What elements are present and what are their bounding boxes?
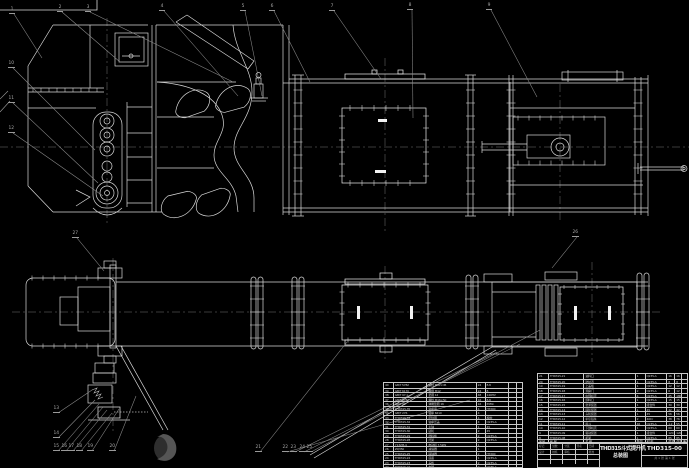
elevation-conveyor-trough [283,75,648,216]
bom-cell: 垫圈 12 [426,393,475,397]
bom-cell [516,389,522,393]
bom-cell: 料斗 [583,422,634,426]
bom-cell: 螺栓 M12×45 [426,383,475,388]
bom-cell [516,420,522,424]
bom-cell: 120 [674,431,681,435]
bom-cell [516,452,522,456]
bom-cell: 8 [666,380,674,384]
bom-cell [516,411,522,415]
bom-cell [516,393,522,397]
balloon-callout: 23 [290,446,297,452]
elevation-bucket-casing [152,15,289,218]
bom-cell: 挡料板 [426,434,475,438]
title-block-cell [587,460,599,464]
drawing-title: 总装图 [600,453,641,459]
bom-row: 23THD315-23盖板2Q235-A [384,460,522,465]
bom-cell: 防护罩 [583,380,634,384]
bom-row: 20THD315-20防护罩1Q235-A88 [538,379,687,384]
bom-cell [681,374,687,379]
bom-cell: 进料口 [583,374,634,379]
bom-table-standard-parts: 40GB/T 5782螺栓 M12×45248.839GB/T 6170螺母 M… [383,382,523,468]
leader-line [62,12,120,62]
bom-cell: 牵引链条 [583,417,634,421]
bom-cell: THD315-31 [393,425,427,429]
balloon-callout: 21 [255,446,262,452]
title-block-cell [550,460,562,464]
bom-cell: 27 [384,443,393,447]
bom-cell [516,416,522,420]
bom-cell: 30 [674,403,681,407]
bom-cell: 1 [476,443,485,447]
bom-row: 34GB/T 276轴承 62104 [384,410,522,415]
bom-cell: THD315-23 [393,461,427,465]
leader-line [90,12,233,82]
bom-cell: 1 [635,408,645,412]
bom-cell: 轴承座 [426,407,475,411]
bom-cell: THD315-08 [548,436,584,440]
bom-cell: 23 [384,461,393,465]
title-block-row: 设计校核审核批准 [538,449,599,454]
bom-cell: 19 [538,384,548,388]
bom-cell: 下部机壳 [583,426,634,430]
bom-cell: 观察门 [583,389,634,393]
bolt-ticks [32,88,650,349]
bom-cell [516,383,522,388]
bom-cell: THD315-25 [393,452,427,456]
title-block-cell: 分区 [562,444,574,449]
bom-cell: Q235-A [485,434,509,438]
bom-cell: Q235-A [485,420,509,424]
bom-cell: 11 [538,422,548,426]
bom-cell: 螺栓 M16×50 [426,398,475,402]
bom-cell: 60 [674,426,681,430]
balloon-callout: 16 [61,445,68,451]
bom-cell: THD315-18 [548,389,584,393]
bom-cell: 4 [476,420,485,424]
bom-row: 19THD315-19上盖板1Q235-A1212 [538,383,687,388]
bom-cell: 8 [538,436,548,440]
bom-cell [508,383,516,388]
balloon-callout: 18 [76,445,83,451]
bom-row: 11THD315-11料斗46Q235-A1.255 [538,421,687,426]
title-block-cell: 设计 [538,450,550,454]
bom-cell [516,447,522,451]
bom-row: 36GB/T 93弹簧垫圈 161665Mn [384,401,522,406]
bom-cell: 42 [666,408,674,412]
bom-cell: 头轮装置 [583,412,634,416]
bom-cell: THD315-21 [548,374,584,379]
bom-cell: 2 [476,461,485,465]
bom-cell: 76 [674,417,681,421]
bom-cell: 4 [476,416,485,420]
bom-cell [516,429,522,433]
leader-line [491,10,537,97]
title-block-cell: 批准 [587,450,599,454]
bom-cell: THD315-32 [393,420,427,424]
bom-cell: 60 [666,426,674,430]
bom-cell: 12 [674,384,681,388]
bom-cell: 电动机 7.5kW [426,443,475,447]
balloon-callout: 12 [8,127,15,133]
bom-cell: 14 [538,408,548,412]
bom-cell: 中部机壳 [583,394,634,398]
title-block-title-cell: THD315斗式提升机 总装图 [600,444,642,467]
bom-cell [485,443,509,447]
bom-cell: 2 [476,452,485,456]
bom-row: 33THD315-33密封圈4橡胶 [384,415,522,420]
bom-cell [516,461,522,465]
balloon-callout: 14 [53,432,60,438]
bom-cell: 橡胶 [485,416,509,420]
bom-cell: 48 [476,393,485,397]
leader-line [58,390,92,413]
balloon-callout: 8 [407,4,413,10]
bom-cell: GB/T 97.1 [393,393,427,397]
bom-cell: 1 [635,384,645,388]
bom-row: 8THD315-08机架1Q235-A8585 [538,435,687,440]
title-block-cell [562,455,574,459]
bom-row: 10THD315-10下部机壳1Q235-A6060 [538,425,687,430]
bom-cell: 6 [666,389,674,393]
leader-line [81,413,112,451]
bom-row: 15THD315-15张紧装置1组合件3030 [538,402,687,407]
bom-row: 9THD315-09驱动装置1组合件120120 [538,430,687,435]
bom-cell: THD315-35 [393,407,427,411]
bom-cell: 33 [384,416,393,420]
bom-cell: 40 [384,383,393,388]
title-block-cell [538,455,550,459]
bom-cell: 45 [485,429,509,433]
bom-cell [516,438,522,442]
bom-row: 18THD315-18观察门2Q235-A612 [538,388,687,393]
bom-cell: 17 [538,394,548,398]
bom-cell: Q235-A [645,394,667,398]
bom-cell: HT200 [485,452,509,456]
bom-cell: 1 [635,380,645,384]
bom-cell: 13 [538,412,548,416]
bom-cell: 120 [666,431,674,435]
balloon-callout: 4 [159,5,165,11]
bom-cell [508,429,516,433]
bom-cell: 35 [384,407,393,411]
balloon-callout: 11 [8,97,15,103]
bom-cell: 密封圈 [426,416,475,420]
bom-cell [508,425,516,429]
bom-cell: 底座 [426,456,475,460]
bom-cell: 1 [635,436,645,440]
bom-row: 27Y132M-4电动机 7.5kW1 [384,442,522,447]
title-block-cell: 签名 [575,444,587,449]
bom-cell: 31 [384,425,393,429]
bom-cell: GB/T 5782 [393,383,427,388]
bom-cell: THD315-30 [393,429,427,433]
bom-cell: 45 [645,408,667,412]
bom-cell [508,443,516,447]
bom-cell [516,443,522,447]
bom-cell: 40Cr [645,417,667,421]
bom-cell: 42 [674,408,681,412]
bom-cell [681,403,687,407]
leader-line [260,342,347,452]
bom-cell: 2 [635,417,645,421]
leader-line [552,237,577,268]
bom-cell: 38 [384,393,393,397]
bom-row: 17THD315-17中部机壳4Q235-A45180 [538,393,687,398]
bom-cell: 联轴器 [426,452,475,456]
balloon-callout: 10 [8,62,15,68]
bom-row: 37GB/T 5782螺栓 M16×50168.8 [384,397,522,402]
bom-row: 35THD315-35轴承座4HT200 [384,406,522,411]
bom-cell: 56 [674,412,681,416]
bom-cell: 弹簧垫圈 16 [426,402,475,406]
bom-cell: 1 [476,425,485,429]
bom-cell: THD315-20 [548,380,584,384]
title-block-row [538,454,599,459]
bom-cell [508,411,516,415]
title-block-cell: 日期 [587,444,599,449]
bom-cell: THD315-10 [548,426,584,430]
bom-cell: 2 [476,429,485,433]
bom-cell: Q235-A [645,422,667,426]
bom-cell [681,408,687,412]
leader-line [274,11,310,82]
bom-cell [681,417,687,421]
bom-row: 14THD315-14尾轮装置1454242 [538,407,687,412]
bom-cell: GB/T 93 [393,402,427,406]
leader-line [412,10,413,118]
sheet-info: 共 1 张 第 1 张 [642,456,687,461]
bom-row: 24THD315-24底座1Q235-A [384,455,522,460]
elevation-inspection-door [342,70,426,183]
bom-cell: 16 [476,398,485,402]
bom-row: 25THD315-25联轴器2HT200 [384,451,522,456]
bom-cell: 螺母 M12 [426,389,475,393]
bom-row: 31THD315-31主轴145 [384,424,522,429]
bom-cell: 组合件 [645,403,667,407]
title-block-cell [575,460,587,464]
bom-row: 16THD315-16卸料口1Q235-A1515 [538,397,687,402]
balloon-callout: 27 [72,232,79,238]
balloon-callout: 25 [306,446,313,452]
leader-line [13,103,98,183]
bom-row: 28THD315-28托架2Q235-A [384,437,522,442]
bom-cell: 1.2 [666,422,674,426]
bom-row: 30THD315-30链轮245 [384,428,522,433]
bom-cell: 36 [384,402,393,406]
bom-cell [508,402,516,406]
bom-row: 32THD315-32轴承压盖4Q235-A [384,419,522,424]
leader-line [77,238,104,271]
bom-row: 38GB/T 97.1垫圈 1248140HV [384,392,522,397]
bom-cell: 上盖板 [583,384,634,388]
balloon-callout: 17 [68,445,75,451]
bom-cell: THD315-33 [393,416,427,420]
bom-cell: 34 [384,411,393,415]
bom-cell: 4 [476,411,485,415]
bom-cell: 38 [666,417,674,421]
bom-cell: 8 [485,389,509,393]
bom-cell: 张紧装置 [583,403,634,407]
leader-line [14,14,42,58]
bom-cell: THD315-19 [548,384,584,388]
bom-cell [681,422,687,426]
title-block-number-cell: THD315-00 共 1 张 第 1 张 [642,444,687,467]
watermark-smudge [154,434,176,461]
balloon-callout: 24 [299,446,306,452]
bom-cell: THD315-14 [548,408,584,412]
bom-cell: 24 [476,383,485,388]
bom-cell: 12 [674,389,681,393]
bom-cell: 39 [384,389,393,393]
leader-line [58,400,95,438]
bom-cell: 尾轮装置 [583,408,634,412]
bom-cell: 140HV [485,393,509,397]
bom-cell: 28 [384,438,393,442]
balloon-callout: 13 [53,407,60,413]
bom-cell [508,434,516,438]
bom-cell [516,402,522,406]
leader-line [13,133,103,196]
bom-row: 13THD315-13头轮装置1455656 [538,411,687,416]
leader-line [13,68,95,150]
bom-cell: 轴承压盖 [426,420,475,424]
bom-cell [508,393,516,397]
bom-cell: 12 [666,384,674,388]
title-block-cell [562,460,574,464]
bom-cell: 1 [635,426,645,430]
balloon-callout: 3 [85,6,91,12]
balloon-callout: 26 [572,231,579,237]
bom-cell: Q235-A [645,398,667,402]
bom-cell: 46 [635,422,645,426]
title-block-cell [587,455,599,459]
bom-cell [516,398,522,402]
bom-row: 22THD315-22支腿2Q235-A [384,464,522,468]
bom-cell: 65Mn [485,402,509,406]
bom-cell: 8.8 [485,383,509,388]
bom-cell: 4 [635,394,645,398]
bom-cell [516,425,522,429]
bom-cell: THD315-29 [393,434,427,438]
bom-cell: 180 [674,394,681,398]
bom-cell [508,456,516,460]
title-block-cell: 校核 [550,450,562,454]
bom-cell [485,447,509,451]
bom-cell: 16 [538,398,548,402]
plan-drive-unit [88,363,148,420]
bom-cell: 85 [674,436,681,440]
bom-cell [508,407,516,411]
bom-cell: Q235-A [485,461,509,465]
bom-cell [516,434,522,438]
bom-cell: 45 [666,394,674,398]
balloon-callout: 9 [486,4,492,10]
title-block-cell [575,450,587,454]
bom-cell: 1 [635,412,645,416]
balloon-callout: 7 [329,5,335,11]
bom-cell [508,416,516,420]
bom-cell: Q235-A [645,374,667,379]
bom-cell: THD315-15 [548,403,584,407]
leader-line [245,11,262,96]
bom-cell: 26 [384,447,393,451]
bom-cell: 1 [635,431,645,435]
bom-cell: 2 [476,438,485,442]
bom-cell [681,431,687,435]
bom-cell: THD315-12 [548,417,584,421]
bom-cell: Q235-A [485,456,509,460]
title-block: 标记处数分区签名日期设计校核审核批准 THD315斗式提升机 总装图 THD31… [537,443,688,468]
bom-cell: 驱动装置 [583,431,634,435]
bom-cell [681,394,687,398]
bom-cell: 32 [384,420,393,424]
bom-cell: HT200 [485,407,509,411]
drawing-number: THD315-00 [642,444,687,456]
bom-cell: 4 [476,407,485,411]
bom-cell [508,420,516,424]
bom-cell: 2 [635,389,645,393]
bom-cell: Q235-A [645,384,667,388]
bom-cell [681,380,687,384]
bom-cell: GB/T 6170 [393,389,427,393]
bom-cell: 85 [666,436,674,440]
bom-cell: THD315-16 [548,398,584,402]
bom-cell: THD315-11 [548,422,584,426]
bom-cell: 25 [384,452,393,456]
sheet-frame [0,0,97,112]
title-block-cell: 审核 [562,450,574,454]
bom-cell: 1 [635,403,645,407]
bom-cell: 1 [476,447,485,451]
balloon-callout: 5 [240,5,246,11]
bom-cell: Y132M-4 [393,443,427,447]
bom-cell: 组合件 [645,431,667,435]
bom-row: 40GB/T 5782螺栓 M12×45248.8 [384,383,522,388]
bom-cell [516,407,522,411]
bom-cell: 16 [674,374,681,379]
bom-cell: Q235-A [645,389,667,393]
bom-cell: 55 [674,422,681,426]
bom-cell: 56 [666,412,674,416]
title-block-cell: 处数 [550,444,562,449]
bom-cell: THD315-13 [548,412,584,416]
bom-cell: GB/T 5782 [393,398,427,402]
bom-cell [485,411,509,415]
balloon-callout: 22 [282,446,289,452]
leader-line [334,11,381,79]
bom-cell [681,384,687,388]
product-title: THD315斗式提升机 [600,446,641,453]
bom-cell [508,398,516,402]
bom-cell: 30 [384,429,393,433]
bom-row: 26ZQ350减速器1 [384,446,522,451]
balloon-callout: 15 [53,445,60,451]
bom-cell: 1 [476,456,485,460]
bom-cell [681,426,687,430]
balloon-callout: 2 [57,6,63,12]
title-block-cell [575,455,587,459]
bom-cell: 10 [538,426,548,430]
bom-cell: 主轴 [426,425,475,429]
bom-cell: 37 [384,398,393,402]
bom-cell: 8.8 [485,398,509,402]
bom-cell: 24 [476,389,485,393]
bom-cell: 45 [645,412,667,416]
bom-row: 21THD315-21进料口1Q235-A1616 [538,374,687,379]
bom-cell: 18 [538,389,548,393]
bom-row: 12THD315-12牵引链条240Cr3876 [538,416,687,421]
title-block-revision-grid: 标记处数分区签名日期设计校核审核批准 [538,444,600,467]
